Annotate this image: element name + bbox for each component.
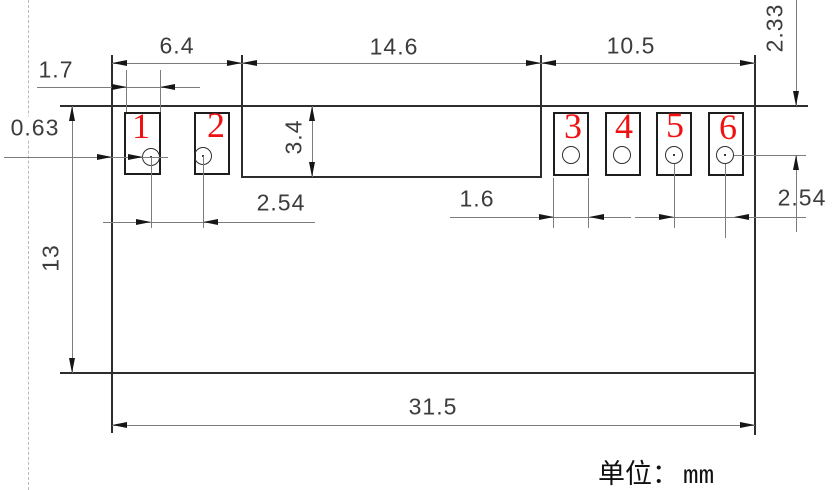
arrowhead <box>541 60 556 66</box>
pad-number-3: 3 <box>564 108 582 144</box>
arrowhead <box>112 422 127 428</box>
body-top-edge <box>60 105 808 107</box>
arrowhead <box>589 214 604 220</box>
arrowhead <box>69 358 75 373</box>
arrowhead <box>740 60 755 66</box>
dim-label-left-section-width: 6.4 <box>160 35 195 58</box>
pad-number-1: 1 <box>132 108 150 144</box>
dim-label-right-pad-width: 1.6 <box>460 188 495 211</box>
engineering-drawing-canvas: 1 2 3 4 5 6 <box>0 0 836 490</box>
hole-3 <box>562 146 580 164</box>
hole-4 <box>613 146 631 164</box>
body-right-edge <box>754 55 756 435</box>
extension-line-hole1 <box>151 157 152 228</box>
hole-5 <box>665 146 683 164</box>
dimension-line-overall-width <box>112 425 755 426</box>
arrowhead <box>793 91 799 106</box>
extension-line-pad1-left <box>126 70 127 112</box>
body-bottom-edge <box>60 372 756 374</box>
dim-label-edge-offset: 0.63 <box>9 117 62 140</box>
arrowhead <box>160 84 175 90</box>
arrowhead <box>112 84 127 90</box>
dim-label-overall-width: 31.5 <box>409 396 458 419</box>
extension-line-pad3-left <box>553 178 554 228</box>
unit-note: 单位： mm <box>598 452 714 490</box>
extension-line-pad3-right <box>588 178 589 228</box>
arrowhead <box>309 162 315 177</box>
extension-line-hole5 <box>674 164 675 228</box>
arrowhead <box>203 219 218 225</box>
dimension-line-top-row <box>112 63 755 64</box>
arrowhead <box>242 60 257 66</box>
extension-line-hole6 <box>725 164 726 238</box>
arrowhead <box>309 106 315 121</box>
pad-number-4: 4 <box>615 108 633 144</box>
arrowhead <box>740 422 755 428</box>
arrowhead <box>128 154 143 160</box>
pad-number-6: 6 <box>719 109 737 145</box>
dimension-line-body-height <box>72 106 73 373</box>
pad-number-5: 5 <box>666 107 684 143</box>
dim-label-right-section-width: 10.5 <box>607 35 656 58</box>
arrowhead <box>112 60 127 66</box>
recess-right-edge <box>540 55 542 177</box>
arrowhead <box>136 219 151 225</box>
arrowhead <box>69 106 75 121</box>
unit-note-value: mm <box>683 461 714 490</box>
hole-6 <box>716 146 734 164</box>
arrowhead <box>97 154 112 160</box>
extension-line-hole2 <box>203 156 204 228</box>
arrowhead <box>227 60 242 66</box>
recess-left-edge <box>241 55 243 177</box>
body-left-edge <box>111 55 113 433</box>
dim-label-left-pad-width: 1.7 <box>39 59 74 82</box>
arrowhead <box>793 155 799 170</box>
dim-label-body-height: 13 <box>40 244 63 272</box>
dim-label-center-section-width: 14.6 <box>370 36 419 59</box>
dashed-margin-line <box>28 0 29 490</box>
dim-label-recess-depth: 3.4 <box>283 120 306 155</box>
unit-note-label: 单位： <box>598 459 679 489</box>
dim-label-top-clearance: 2.33 <box>764 4 787 53</box>
recess-bottom-edge <box>241 176 542 178</box>
arrowhead <box>539 214 554 220</box>
arrowhead <box>526 60 541 66</box>
dim-label-left-pitch: 2.54 <box>257 192 306 215</box>
arrowhead <box>734 214 749 220</box>
pad-number-2: 2 <box>207 107 225 143</box>
dim-label-pin-row-offset: 2.54 <box>778 187 827 210</box>
dimension-line-edge-offset <box>4 157 168 158</box>
extension-line-pad1-right <box>160 70 161 112</box>
arrowhead <box>659 214 674 220</box>
